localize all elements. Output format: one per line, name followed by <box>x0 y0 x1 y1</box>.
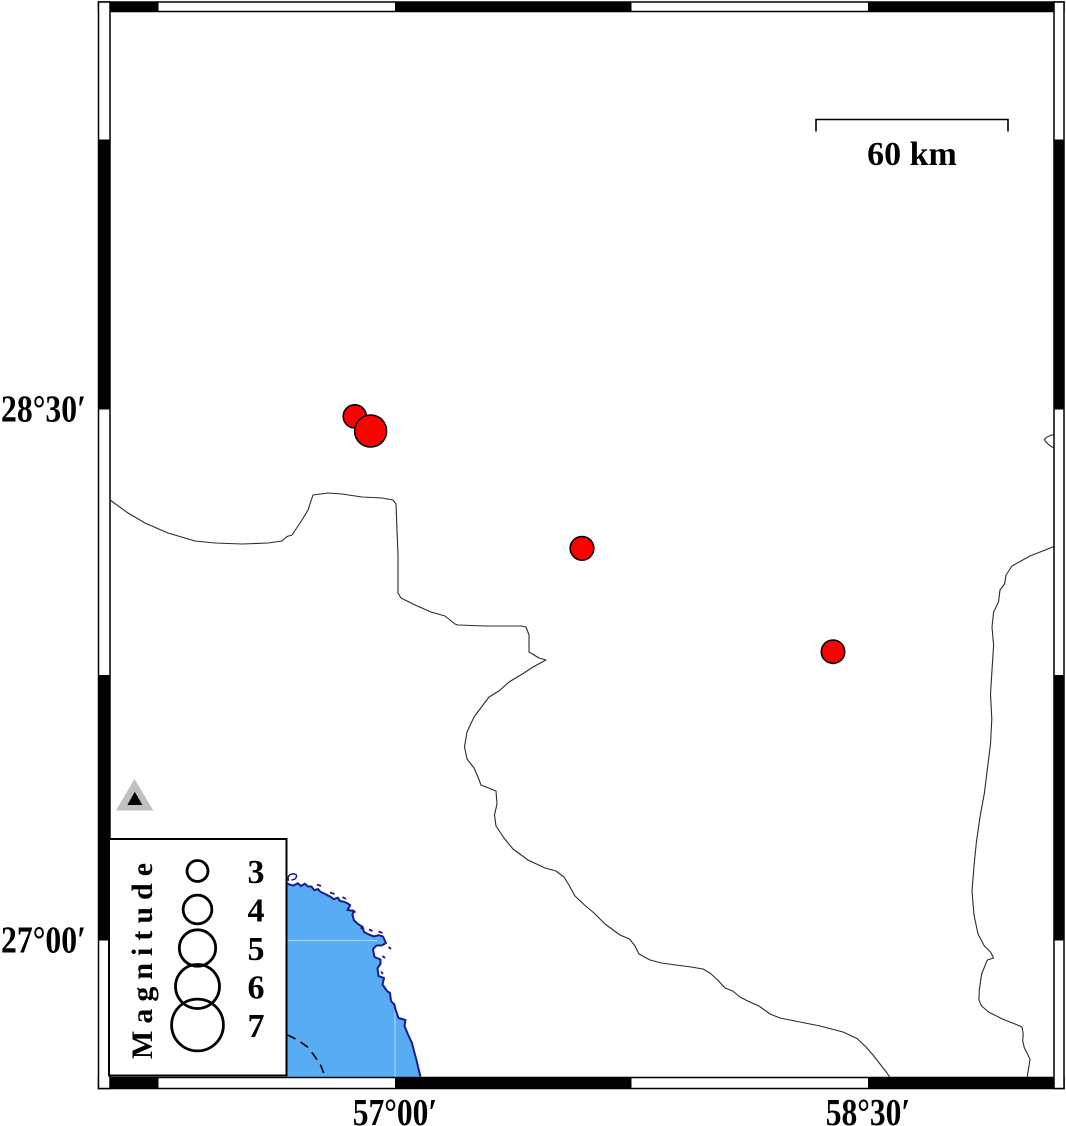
svg-text:27°00′: 27°00′ <box>1 920 86 962</box>
svg-text:Magnitude: Magnitude <box>126 856 159 1059</box>
svg-text:57°00′: 57°00′ <box>353 1092 438 1126</box>
svg-text:58°30′: 58°30′ <box>826 1092 911 1126</box>
svg-text:3: 3 <box>248 854 265 891</box>
svg-text:7: 7 <box>248 1008 265 1045</box>
svg-text:60 km: 60 km <box>867 136 957 173</box>
svg-text:6: 6 <box>248 970 265 1007</box>
svg-text:28°30′: 28°30′ <box>1 389 86 431</box>
svg-text:5: 5 <box>248 931 265 968</box>
svg-text:4: 4 <box>248 893 265 930</box>
